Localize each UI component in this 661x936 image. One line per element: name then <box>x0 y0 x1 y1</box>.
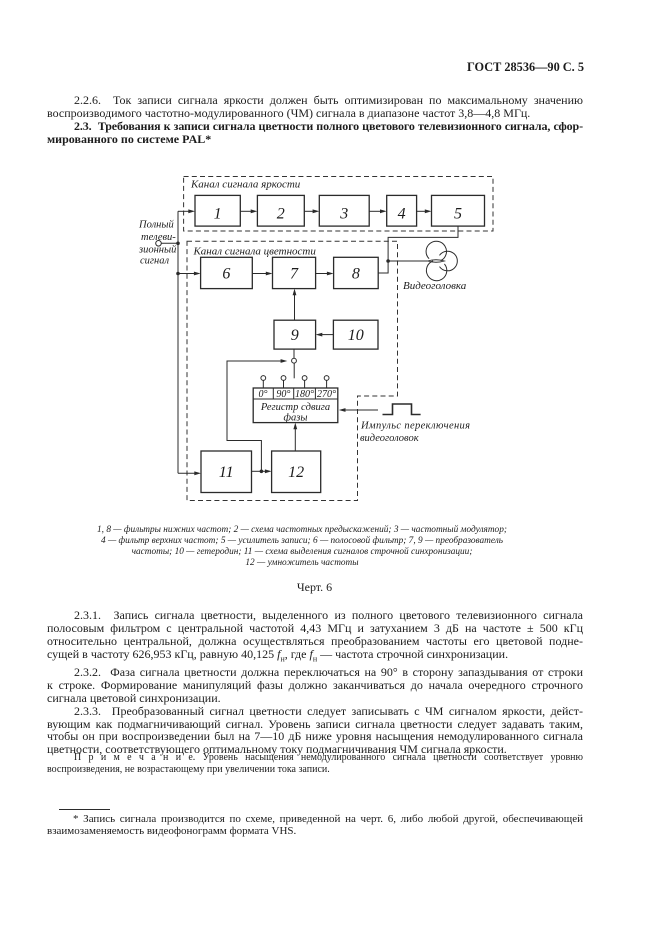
svg-text:сигнал: сигнал <box>140 255 169 266</box>
svg-text:4: 4 <box>398 206 406 223</box>
svg-text:Канал сигнала цветности: Канал сигнала цветности <box>193 246 317 258</box>
svg-text:Видеоголовка: Видеоголовка <box>403 280 467 292</box>
svg-text:фазы: фазы <box>284 413 308 424</box>
svg-text:11: 11 <box>219 464 234 481</box>
svg-text:8: 8 <box>352 266 360 283</box>
svg-text:Импульс переключения: Импульс переключения <box>360 421 470 432</box>
svg-text:90°: 90° <box>276 389 290 400</box>
svg-text:видеоголовок: видеоголовок <box>360 433 419 444</box>
svg-text:зионный: зионный <box>138 245 177 256</box>
svg-text:1: 1 <box>214 206 222 223</box>
svg-text:9: 9 <box>291 327 299 344</box>
svg-text:10: 10 <box>348 327 364 344</box>
svg-text:270°: 270° <box>317 389 336 400</box>
svg-text:7: 7 <box>290 266 299 283</box>
svg-text:3: 3 <box>339 206 348 223</box>
svg-text:0°: 0° <box>259 389 268 400</box>
svg-text:12: 12 <box>288 464 304 481</box>
svg-text:2: 2 <box>277 206 285 223</box>
svg-text:телеви-: телеви- <box>141 232 176 243</box>
svg-text:Полный: Полный <box>138 220 174 231</box>
svg-text:6: 6 <box>222 266 230 283</box>
svg-text:5: 5 <box>454 206 462 223</box>
svg-text:180°: 180° <box>295 389 314 400</box>
svg-text:Канал сигнала яркости: Канал сигнала яркости <box>190 179 301 191</box>
svg-text:Регистр сдвига: Регистр сдвига <box>260 402 330 413</box>
